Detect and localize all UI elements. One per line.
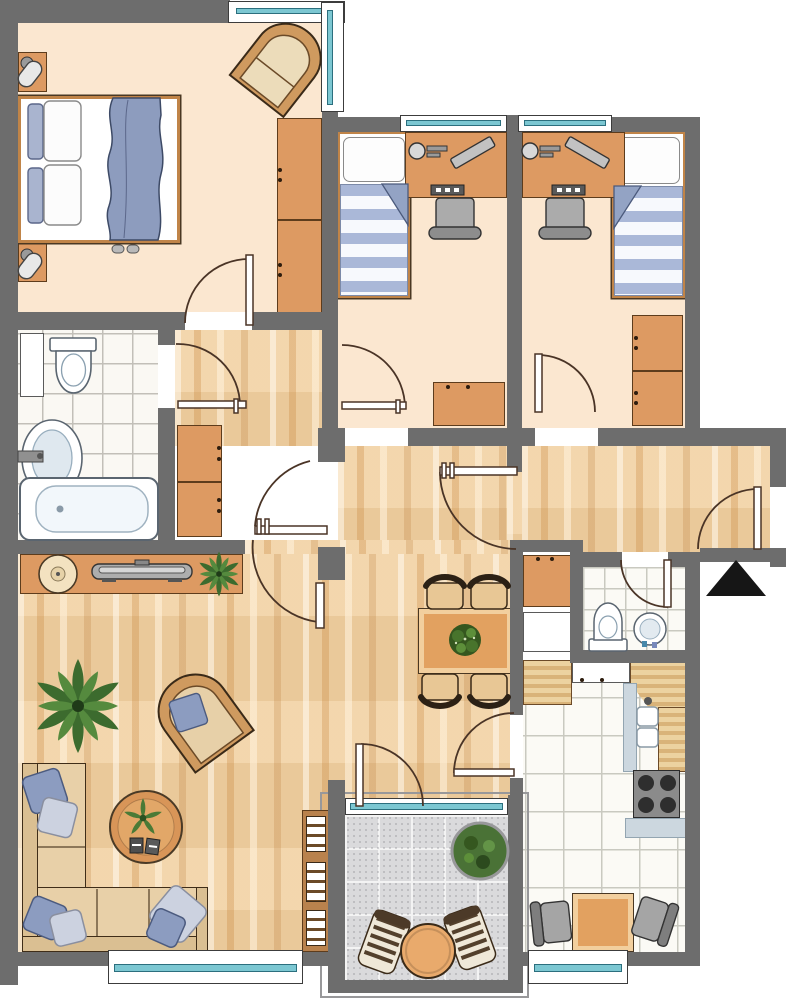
master-armchair: [230, 10, 334, 116]
master-bed-details: [28, 98, 163, 253]
dining-chair-seat: [422, 674, 458, 700]
kitchen-details: [530, 697, 680, 947]
wc-door-leaf: [664, 560, 671, 607]
lamp-icon: [15, 250, 45, 282]
child2-desk-items: [522, 136, 641, 239]
pillow-light: [36, 796, 78, 838]
entrance-door-arc: [698, 489, 758, 549]
monitor-icon: [450, 136, 495, 169]
child2-door-arc: [538, 355, 595, 412]
balcony-furniture: [356, 823, 508, 978]
pillow-blue: [28, 168, 43, 223]
kitchen-door-leaf: [454, 769, 514, 776]
burner: [660, 775, 676, 791]
wc-fixtures: [589, 603, 666, 651]
burner: [638, 797, 654, 813]
balcony-door-leaf: [356, 744, 363, 806]
overlay: [0, 0, 786, 1000]
monitor-icon: [565, 136, 610, 169]
slipper: [127, 245, 139, 253]
entrance-arrow-icon: [706, 560, 766, 596]
duvet-fold: [614, 186, 641, 228]
dining-chair-seat: [471, 674, 507, 700]
bathroom-door-arc: [176, 344, 240, 406]
living-door-arc-a: [255, 461, 310, 526]
faucet-icon: [644, 697, 652, 705]
pillow-white: [44, 101, 81, 161]
pillow-blue: [28, 104, 43, 159]
toilet-icon: [594, 603, 622, 640]
balcony-door-arc: [361, 744, 423, 806]
desk-chair-back: [539, 227, 591, 239]
pillow-light: [49, 909, 88, 948]
balcony-bush-icon: [452, 823, 508, 879]
living-armchair: [145, 661, 254, 773]
floor-plan: [0, 0, 786, 1000]
coffee-table: [110, 791, 182, 863]
balcony-table: [401, 924, 455, 978]
desk-chair-back: [429, 227, 481, 239]
living-door-arc-b: [253, 540, 318, 622]
door-leaves: [178, 255, 761, 806]
master-door-arc: [185, 259, 249, 323]
dining-table-plant-icon: [449, 624, 481, 656]
sink-basin: [637, 707, 658, 726]
door-jamb-tick: [234, 399, 238, 413]
desk-chair-seat: [436, 198, 474, 231]
blanket: [107, 98, 163, 240]
entrance-door-leaf: [754, 487, 761, 549]
sink-basin: [637, 728, 658, 747]
sideboard-plant-icon: [198, 551, 240, 596]
desk-lamp-icon: [409, 143, 425, 159]
master-door-leaf: [246, 255, 253, 325]
kitchen-chair: [630, 894, 680, 948]
desk-chair-seat: [546, 198, 584, 231]
door-jamb-tick: [450, 463, 454, 478]
kitchen-door-arc: [454, 713, 514, 773]
bathroom-fixtures: [18, 338, 158, 540]
toilet-tank: [50, 338, 96, 351]
child1-door-arc: [342, 345, 405, 408]
pillow-white: [44, 165, 81, 225]
dining-chair-seat: [471, 583, 507, 609]
duvet-fold: [382, 184, 408, 225]
child2-door-leaf: [535, 354, 542, 412]
door-jamb-tick: [442, 463, 446, 478]
dining-chair-seat: [427, 583, 463, 609]
door-jamb-tick: [257, 519, 261, 534]
door-jamb-tick: [265, 519, 269, 534]
lamp-icon: [15, 58, 45, 90]
desk-lamp-icon: [522, 143, 538, 159]
drain: [57, 506, 64, 513]
living-plant-icon: [34, 659, 121, 753]
burner: [638, 775, 654, 791]
dining-set: [421, 577, 508, 706]
kitchen-chair: [530, 899, 572, 947]
toilet-tank: [589, 639, 627, 651]
child1-desk-items: [382, 136, 495, 239]
sofa-pillows: [21, 767, 209, 949]
hall-passage-door-arc: [440, 472, 516, 549]
door-jamb-tick: [396, 400, 400, 413]
living-door-leaf-b: [316, 583, 324, 628]
burner: [660, 797, 676, 813]
wc-door-arc: [621, 560, 668, 607]
sideboard-items: [39, 555, 192, 593]
slipper: [112, 245, 124, 253]
